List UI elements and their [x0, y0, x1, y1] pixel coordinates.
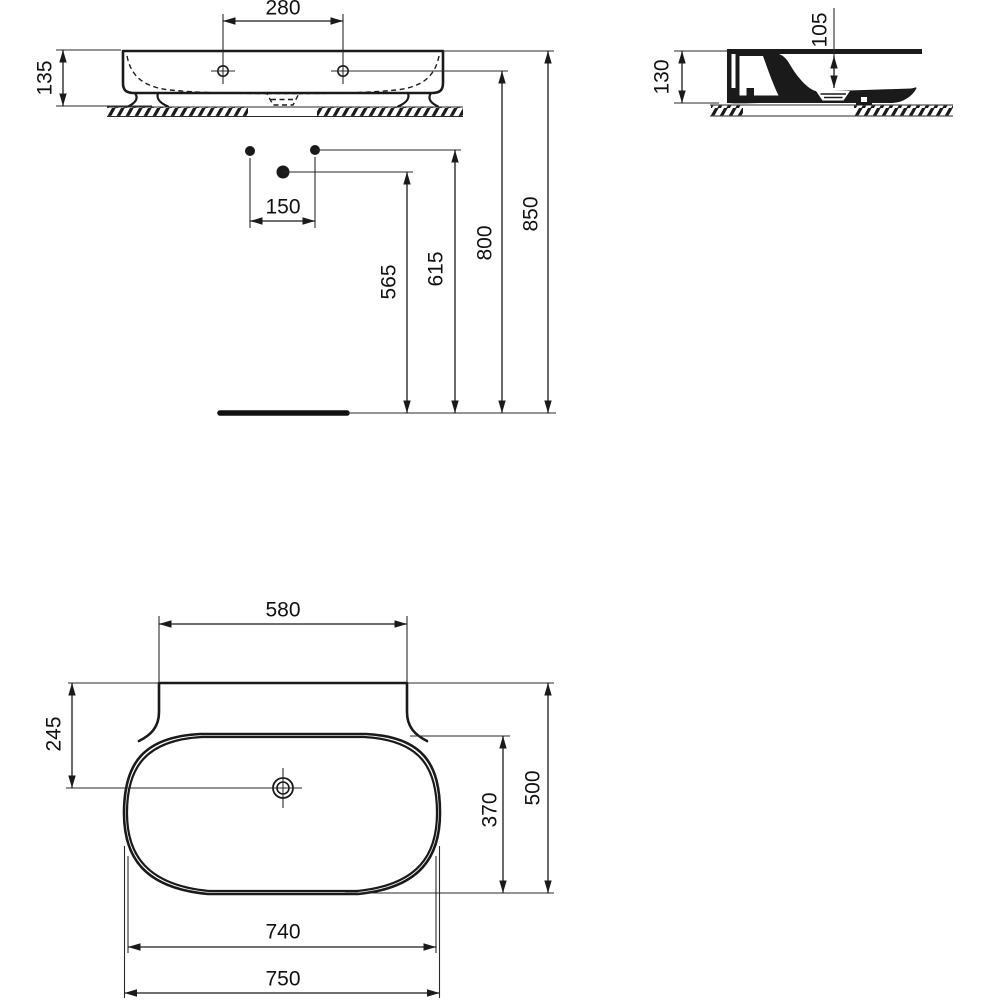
- dimension-565: 565: [283, 172, 413, 413]
- dimension-370: 370: [410, 736, 510, 893]
- dim-label-580: 580: [265, 599, 300, 622]
- connection-points: [245, 145, 320, 179]
- dim-label-850: 850: [520, 196, 543, 231]
- dim-label-800: 800: [474, 225, 497, 260]
- washbasin-dimension-drawing: 280 135 150 565 615: [0, 0, 1000, 1000]
- dimension-130: 130: [651, 51, 727, 103]
- technical-drawing-page: 280 135 150 565 615: [0, 0, 1000, 1000]
- plan-back-side-right: [407, 683, 427, 741]
- front-hidden-bowl-left: [127, 56, 268, 94]
- side-view: 130 105: [651, 8, 953, 116]
- dimension-740: 740: [128, 856, 436, 953]
- side-basin-section: [727, 49, 931, 105]
- connection-dot-left: [245, 146, 255, 156]
- dimension-135: 135: [34, 50, 152, 106]
- dimension-280: 280: [223, 0, 343, 84]
- plan-view: 580 245 370 500 740: [43, 599, 554, 998]
- dim-label-500: 500: [522, 770, 545, 805]
- dim-label-150: 150: [265, 196, 300, 219]
- front-right-foot: [398, 93, 438, 107]
- dim-label-135: 135: [34, 60, 57, 95]
- dim-label-280: 280: [265, 0, 300, 20]
- dim-label-750: 750: [265, 968, 300, 991]
- plan-bowl-edge: [127, 737, 437, 891]
- front-basin-outline: [123, 51, 443, 107]
- plan-back-side-left: [139, 683, 159, 741]
- dimension-800: 800: [331, 71, 508, 413]
- dim-label-565: 565: [378, 264, 401, 299]
- dimension-245: 245: [43, 683, 302, 788]
- front-view: 280 135 150 565 615: [34, 0, 556, 413]
- dimension-850: 850: [443, 51, 554, 413]
- side-shelf-hatch: [710, 105, 953, 116]
- dim-label-615: 615: [425, 251, 448, 286]
- front-hidden-bowl-right: [298, 56, 439, 94]
- dim-label-105: 105: [809, 12, 832, 47]
- front-shelf-hatch: [107, 107, 463, 117]
- dim-label-370: 370: [479, 792, 502, 827]
- dim-label-130: 130: [651, 59, 674, 94]
- dimension-580: 580: [159, 599, 407, 683]
- dimension-500: 500: [345, 683, 554, 893]
- side-drain-stub-notch: [861, 97, 867, 102]
- dim-label-740: 740: [265, 921, 300, 944]
- dim-label-245: 245: [43, 716, 66, 751]
- side-back-slot: [732, 54, 736, 88]
- plan-outer-rim: [124, 734, 440, 894]
- front-hidden-trap: [267, 94, 299, 106]
- front-left-foot: [128, 93, 168, 107]
